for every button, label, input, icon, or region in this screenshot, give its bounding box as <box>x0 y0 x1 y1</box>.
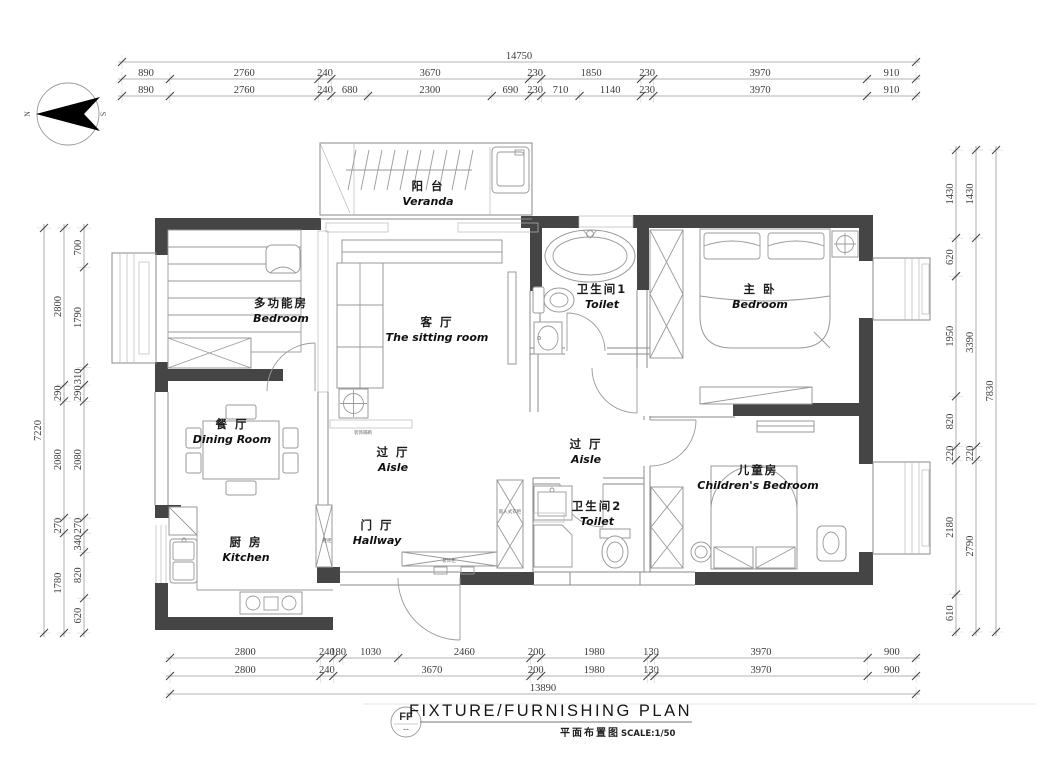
room-name-cn: 阳 台 <box>411 179 444 193</box>
dimension-value: 240 <box>317 68 333 79</box>
dimension-value: 290 <box>73 385 84 401</box>
room-label: 厨 房Kitchen <box>222 535 269 564</box>
window-toilet1 <box>579 216 633 227</box>
room-name-en: Aisle <box>377 461 409 474</box>
children-desk <box>817 526 846 561</box>
dimension-value: 3670 <box>420 68 441 79</box>
dimension-value: 7220 <box>33 420 44 441</box>
kitchen-window <box>156 525 166 583</box>
toilet1-bowl <box>544 288 574 312</box>
plan-code-note: -- <box>403 724 409 734</box>
dimension-value: 340 <box>73 535 84 551</box>
dimension-value: 3390 <box>965 332 976 353</box>
partition-hatch-wall <box>318 231 328 392</box>
room-name-cn: 主 卧 <box>743 282 776 296</box>
dimension-value: 2080 <box>53 449 64 470</box>
room-name-cn: 多功能房 <box>254 296 308 310</box>
dimension-value: 2300 <box>419 85 440 96</box>
room-name-en: Dining Room <box>193 433 272 446</box>
room-name-cn: 厨 房 <box>229 535 262 549</box>
dimension-value: 1980 <box>584 647 605 658</box>
room-label: 阳 台Veranda <box>402 179 453 208</box>
dimension-value: 690 <box>503 85 519 96</box>
desk <box>266 245 300 273</box>
dimension-value: 3970 <box>750 68 771 79</box>
door-entrance <box>398 578 460 640</box>
dimension-value: 270 <box>73 518 84 534</box>
dimension-value: 2080 <box>73 449 84 470</box>
room-label: 卫生间2Toilet <box>572 499 623 528</box>
door-children <box>650 420 696 466</box>
dims-left-total: 7220 <box>33 224 51 637</box>
room-label: 客 厅The sitting room <box>386 315 489 344</box>
room-name-cn: 过 厅 <box>569 437 602 451</box>
toilet2-bowl <box>602 536 628 568</box>
dimension-value: 230 <box>527 85 543 96</box>
room-name-en: Toilet <box>580 515 615 528</box>
master-wardrobe <box>650 230 683 358</box>
dims-top-inner: 8902760240680230069023071011402303970910 <box>118 85 920 103</box>
dimension-value: 230 <box>639 68 655 79</box>
doors <box>267 313 696 640</box>
dimension-value: 3970 <box>750 85 771 96</box>
built-in-wardrobe <box>497 480 523 568</box>
dimension-value: 2800 <box>53 296 64 317</box>
room-label: 过 厅Aisle <box>569 437 602 466</box>
room-name-en: Kitchen <box>222 551 269 564</box>
dimension-value: 1950 <box>945 326 956 347</box>
cabinet-label: 装饰柜 <box>442 557 456 564</box>
shower <box>534 525 572 567</box>
dimension-value: 900 <box>884 665 900 676</box>
dimension-value: 240 <box>319 665 335 676</box>
dimension-value: 3970 <box>751 647 772 658</box>
decor-partition <box>330 420 412 428</box>
room-name-cn: 门 厅 <box>360 518 393 532</box>
room-name-en: Bedroom <box>732 298 788 311</box>
dims-bottom-inner: 28002401801030246020019801303970900 <box>166 647 920 665</box>
dimension-value: 3670 <box>421 665 442 676</box>
floor-plan-drawing: N S <box>0 0 1040 780</box>
left-bay-window <box>112 253 156 363</box>
dimension-value: 290 <box>53 385 64 401</box>
dims-right-mid: 143033902202790 <box>965 146 983 636</box>
door-bedroom <box>267 343 315 391</box>
dims-right-total: 7830 <box>985 146 1003 636</box>
dimension-value: 1030 <box>360 647 381 658</box>
room-name-cn: 过 厅 <box>376 445 409 459</box>
dimension-value: 220 <box>965 446 976 462</box>
kitchen-sink <box>170 539 197 583</box>
dimension-value: 820 <box>73 567 84 583</box>
room-name-en: Hallway <box>353 534 402 547</box>
dimension-value: 1430 <box>945 184 956 205</box>
room-label: 门 厅Hallway <box>353 518 402 547</box>
room-name-en: Veranda <box>402 195 453 208</box>
dims-top-mid: 8902760240367023018502303970910 <box>118 68 920 86</box>
dimension-value: 910 <box>884 85 900 96</box>
room-name-en: The sitting room <box>386 331 489 344</box>
room-name-en: Children's Bedroom <box>697 479 819 492</box>
dimension-value: 680 <box>342 85 358 96</box>
room-name-cn: 餐 厅 <box>214 417 248 431</box>
dims-bottom-mid: 2800240367020019801303970900 <box>166 665 920 683</box>
dims-left-mid: 280029020802701780 <box>53 224 71 637</box>
dimension-value: 2800 <box>235 647 256 658</box>
cabinet-label: 装饰隔断 <box>354 429 372 436</box>
dimension-value: 3970 <box>751 665 772 676</box>
dimension-value: 180 <box>330 647 346 658</box>
dimension-value: 1980 <box>584 665 605 676</box>
dimension-value: 1790 <box>73 307 84 328</box>
dimension-value: 7830 <box>985 381 996 402</box>
compass-south-label: S <box>99 112 108 116</box>
stove <box>240 592 302 614</box>
plan-subtitle-cn: 平面布置图 <box>560 726 620 739</box>
dimension-value: 820 <box>945 414 956 430</box>
room-name-cn: 卫生间1 <box>577 282 628 296</box>
master-bay-window <box>873 258 930 320</box>
door-toilet1 <box>567 313 605 351</box>
children-bay-window <box>873 462 930 554</box>
dimension-value: 890 <box>138 68 154 79</box>
room-name-cn: 儿童房 <box>737 463 779 477</box>
room-name-en: Toilet <box>585 298 620 311</box>
dimension-value: 1850 <box>581 68 602 79</box>
dims-bottom-total: 13890 <box>166 683 920 701</box>
dimension-value: 2800 <box>235 665 256 676</box>
children-furniture <box>651 421 846 569</box>
dimension-value: 270 <box>53 518 64 534</box>
title-block: FF -- FIXTURE/FURNISHING PLAN 平面布置图 SCAL… <box>363 702 1036 739</box>
dimension-value: 890 <box>138 85 154 96</box>
compass: N S <box>23 83 108 145</box>
dimension-value: 1780 <box>53 573 64 594</box>
dimension-value: 14750 <box>506 51 532 62</box>
plan-title: FIXTURE/FURNISHING PLAN <box>409 702 692 720</box>
tv-cabinet <box>508 272 516 364</box>
room-name-cn: 卫生间2 <box>572 499 623 513</box>
floor-plan-page: N S <box>0 0 1040 780</box>
pouf <box>691 542 711 562</box>
dimension-value: 620 <box>945 249 956 265</box>
cabinet-label: 嵌入式衣柜 <box>499 508 522 515</box>
room-name-cn: 客 厅 <box>419 315 453 329</box>
dimension-value: 710 <box>553 85 569 96</box>
dimension-value: 310 <box>73 368 84 384</box>
dims-left-inner: 70017903102902080270340820620 <box>73 224 91 637</box>
hallway-furniture <box>316 480 523 574</box>
dimension-value: 620 <box>73 608 84 624</box>
cabinet-label: 鞋柜 <box>323 537 332 544</box>
cabinet-bench <box>342 240 502 263</box>
room-name-en: Bedroom <box>253 312 309 325</box>
compass-north-label: N <box>23 111 32 117</box>
children-shelf <box>757 421 814 432</box>
dimension-value: 900 <box>884 647 900 658</box>
dimension-value: 230 <box>639 85 655 96</box>
dimension-value: 230 <box>527 68 543 79</box>
dimension-value: 1430 <box>965 184 976 205</box>
dimension-value: 1140 <box>600 85 621 96</box>
dimension-value: 13890 <box>530 683 556 694</box>
room-name-en: Aisle <box>570 453 602 466</box>
dims-right-inner: 143062019508202202180610 <box>945 146 963 636</box>
dimension-value: 2180 <box>945 517 956 538</box>
dimension-value: 700 <box>73 240 84 256</box>
dimension-value: 910 <box>884 68 900 79</box>
room-label: 卫生间1Toilet <box>577 282 628 311</box>
room-label: 多功能房Bedroom <box>253 296 309 325</box>
dimension-value: 610 <box>945 605 956 621</box>
master-furniture <box>650 229 858 404</box>
dimension-value: 2790 <box>965 536 976 557</box>
children-wardrobe <box>651 487 683 568</box>
plan-scale: SCALE:1/50 <box>621 729 675 739</box>
toilet1-tank <box>533 287 544 313</box>
dims-top-total: 14750 <box>118 51 920 69</box>
dimension-value: 220 <box>945 446 956 462</box>
dimension-value: 240 <box>317 85 333 96</box>
dimension-value: 2460 <box>454 647 475 658</box>
dimension-value: 2760 <box>234 85 255 96</box>
door-master <box>592 368 637 413</box>
compass-needle <box>36 97 100 131</box>
room-label: 过 厅Aisle <box>376 445 409 474</box>
dimension-value: 2760 <box>234 68 255 79</box>
